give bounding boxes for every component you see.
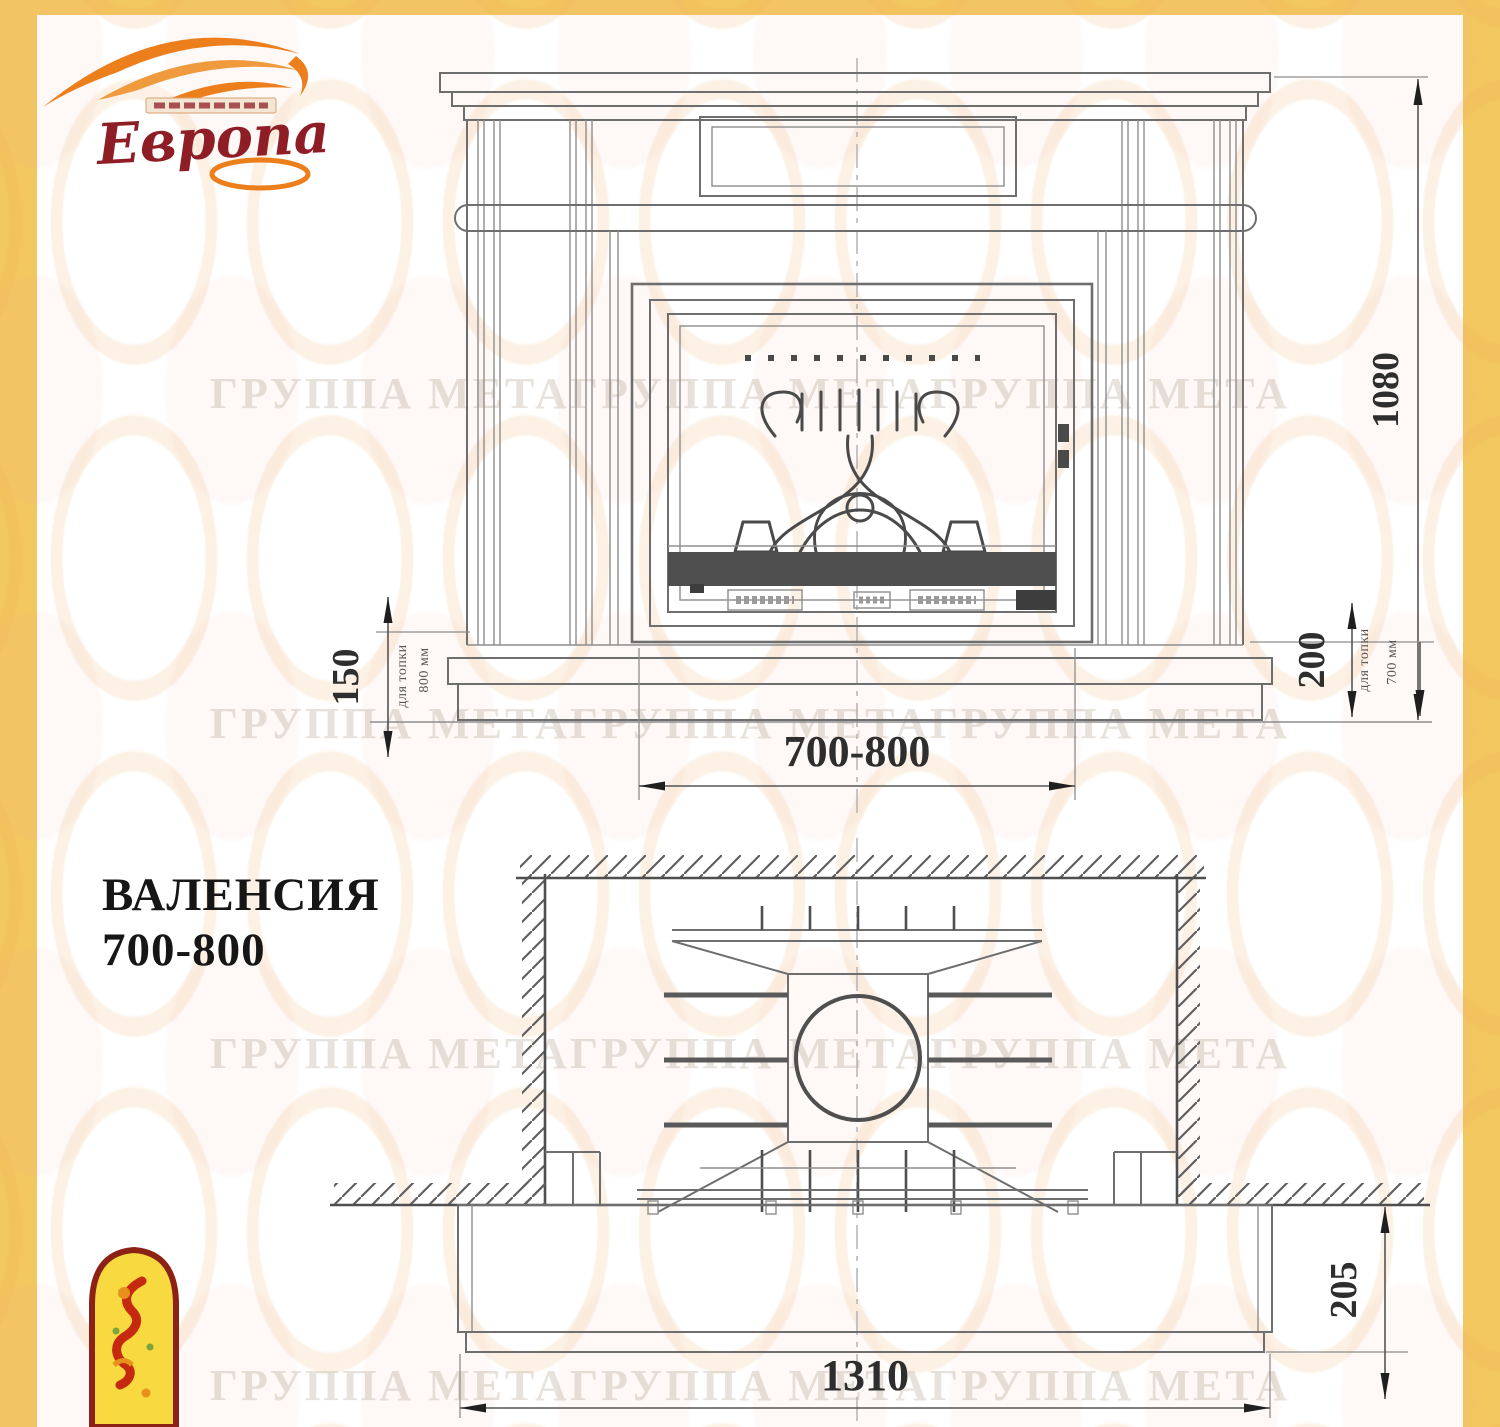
mantel-shelf <box>440 73 1270 120</box>
torus-molding <box>455 205 1256 231</box>
dim-label-205: 205 <box>1323 1262 1365 1319</box>
emblem-arch <box>92 1250 176 1427</box>
model-title: ВАЛЕНСИЯ 700-800 <box>102 868 482 977</box>
dim-label-150: 150 <box>325 649 367 706</box>
brand-plates <box>690 584 1056 610</box>
floor-line-plan <box>330 1183 1430 1205</box>
flue-circle <box>796 996 920 1120</box>
hearth-fender <box>637 1190 1088 1214</box>
fireplace-plan-view: 205 1310 <box>330 838 1430 1422</box>
note-left-line1: для топки <box>395 644 410 707</box>
niche-walls <box>516 855 1206 1205</box>
logo-wordmark: Европа <box>93 100 328 178</box>
page: ГРУППА МЕТАГРУППА МЕТАГРУППА МЕТА ГРУППА… <box>0 0 1500 1427</box>
dim-label-700-800: 700-800 <box>784 727 931 776</box>
model-title-name: ВАЛЕНСИЯ <box>102 868 482 923</box>
portal-returns <box>545 1152 1177 1205</box>
fire-grate <box>735 390 985 552</box>
dim-base-width: 1310 <box>460 1351 1270 1418</box>
base-slabs <box>448 658 1272 720</box>
door-handle <box>1058 424 1069 468</box>
europa-logo: Европа <box>28 12 328 217</box>
note-right-line1: для топки <box>1357 628 1372 691</box>
dim-label-1080: 1080 <box>1365 352 1407 428</box>
dim-label-200: 200 <box>1291 632 1333 689</box>
note-right-line2: 700 мм <box>1385 639 1400 684</box>
note-left-line2: 800 мм <box>417 647 432 692</box>
frieze-panel <box>700 117 1016 196</box>
brand-emblem <box>84 1243 184 1427</box>
base-slab-plan <box>458 1205 1272 1352</box>
hearth-strip <box>668 552 1056 586</box>
model-title-size: 700-800 <box>102 923 482 978</box>
chimney-plan <box>658 906 1058 1212</box>
fireplace-front-view: 1080 150 для топки 800 мм 200 для топки <box>325 58 1434 815</box>
dim-label-1310: 1310 <box>821 1351 909 1400</box>
dim-hearth-right: 200 для топки 700 мм <box>1250 603 1434 717</box>
dim-base-depth: 205 <box>1266 1207 1408 1399</box>
